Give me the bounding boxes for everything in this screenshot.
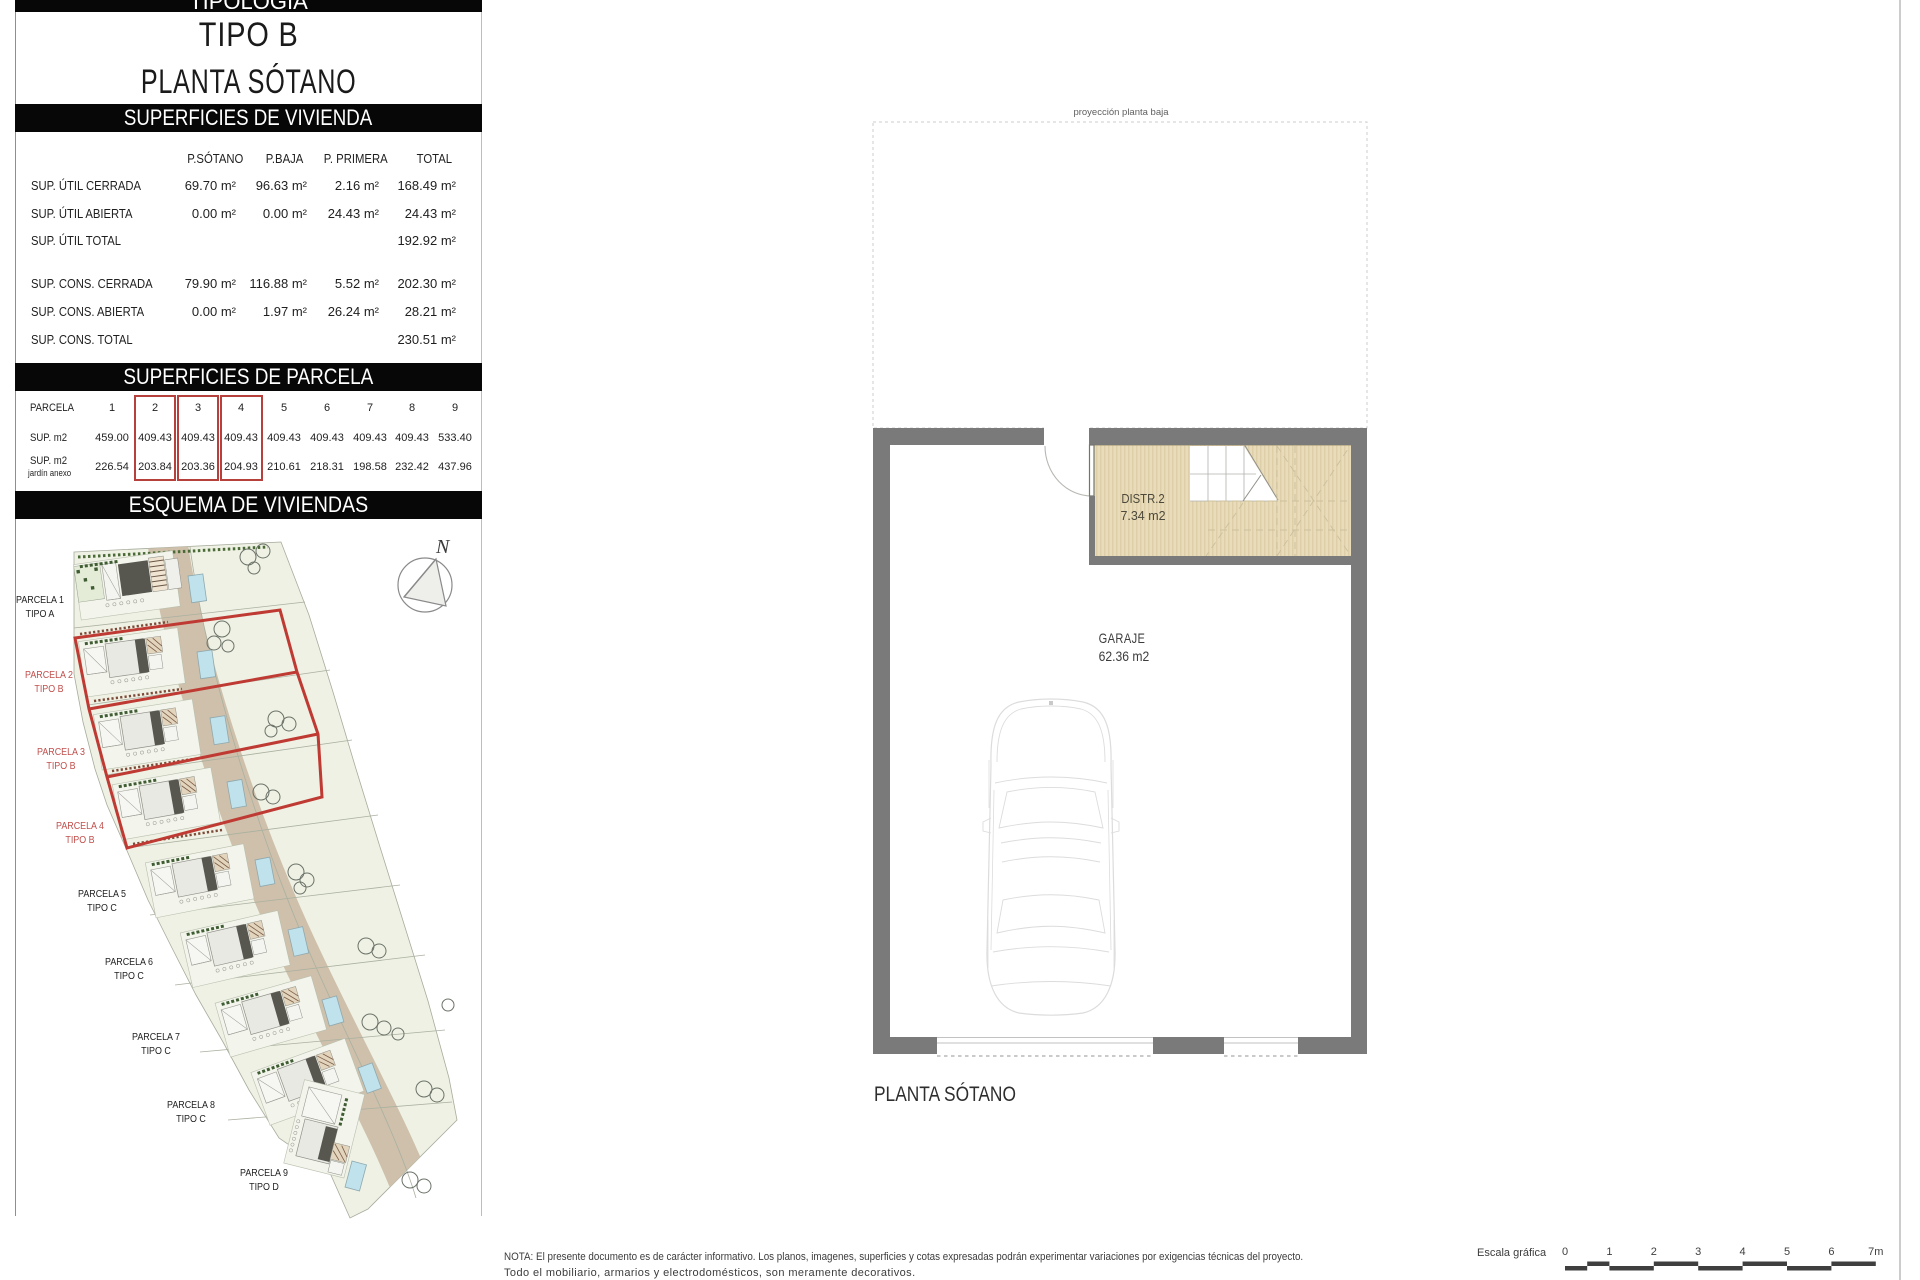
svg-text:PARCELA 3: PARCELA 3 — [37, 746, 85, 758]
svg-text:PARCELA 5: PARCELA 5 — [78, 888, 126, 900]
svg-text:TIPO B: TIPO B — [34, 683, 63, 695]
svg-text:PARCELA 6: PARCELA 6 — [105, 956, 153, 968]
svg-text:PARCELA 4: PARCELA 4 — [56, 820, 104, 832]
svg-text:2: 2 — [1651, 1246, 1657, 1258]
svg-text:TIPO C: TIPO C — [141, 1045, 171, 1057]
svg-text:1: 1 — [1606, 1246, 1612, 1258]
svg-text:TIPO C: TIPO C — [87, 902, 117, 914]
svg-text:7.34 m2: 7.34 m2 — [1120, 508, 1165, 523]
svg-text:PARCELA 2: PARCELA 2 — [25, 669, 73, 681]
svg-text:TIPO D: TIPO D — [249, 1181, 279, 1193]
svg-text:PARCELA 9: PARCELA 9 — [240, 1167, 288, 1179]
svg-text:TIPO A: TIPO A — [26, 608, 55, 620]
svg-text:TIPO B: TIPO B — [46, 760, 75, 772]
svg-text:GARAJE: GARAJE — [1099, 631, 1146, 646]
svg-text:TIPO C: TIPO C — [176, 1113, 206, 1125]
svg-text:PLANTA SÓTANO: PLANTA SÓTANO — [874, 1082, 1016, 1106]
svg-text:3: 3 — [1695, 1246, 1701, 1258]
svg-text:0: 0 — [1562, 1246, 1568, 1258]
svg-text:7m: 7m — [1868, 1246, 1883, 1258]
svg-text:PARCELA 8: PARCELA 8 — [167, 1099, 215, 1111]
svg-text:TIPO C: TIPO C — [114, 970, 144, 982]
svg-text:4: 4 — [1740, 1246, 1746, 1258]
svg-text:62.36 m2: 62.36 m2 — [1099, 648, 1150, 664]
svg-text:6: 6 — [1828, 1246, 1834, 1258]
svg-text:5: 5 — [1784, 1246, 1790, 1258]
svg-text:TIPO B: TIPO B — [65, 834, 94, 846]
svg-text:proyección planta baja: proyección planta baja — [1073, 107, 1169, 118]
svg-text:N: N — [435, 536, 451, 558]
svg-text:DISTR.2: DISTR.2 — [1121, 491, 1165, 506]
svg-text:PARCELA 1: PARCELA 1 — [16, 594, 64, 606]
svg-text:PARCELA 7: PARCELA 7 — [132, 1031, 180, 1043]
